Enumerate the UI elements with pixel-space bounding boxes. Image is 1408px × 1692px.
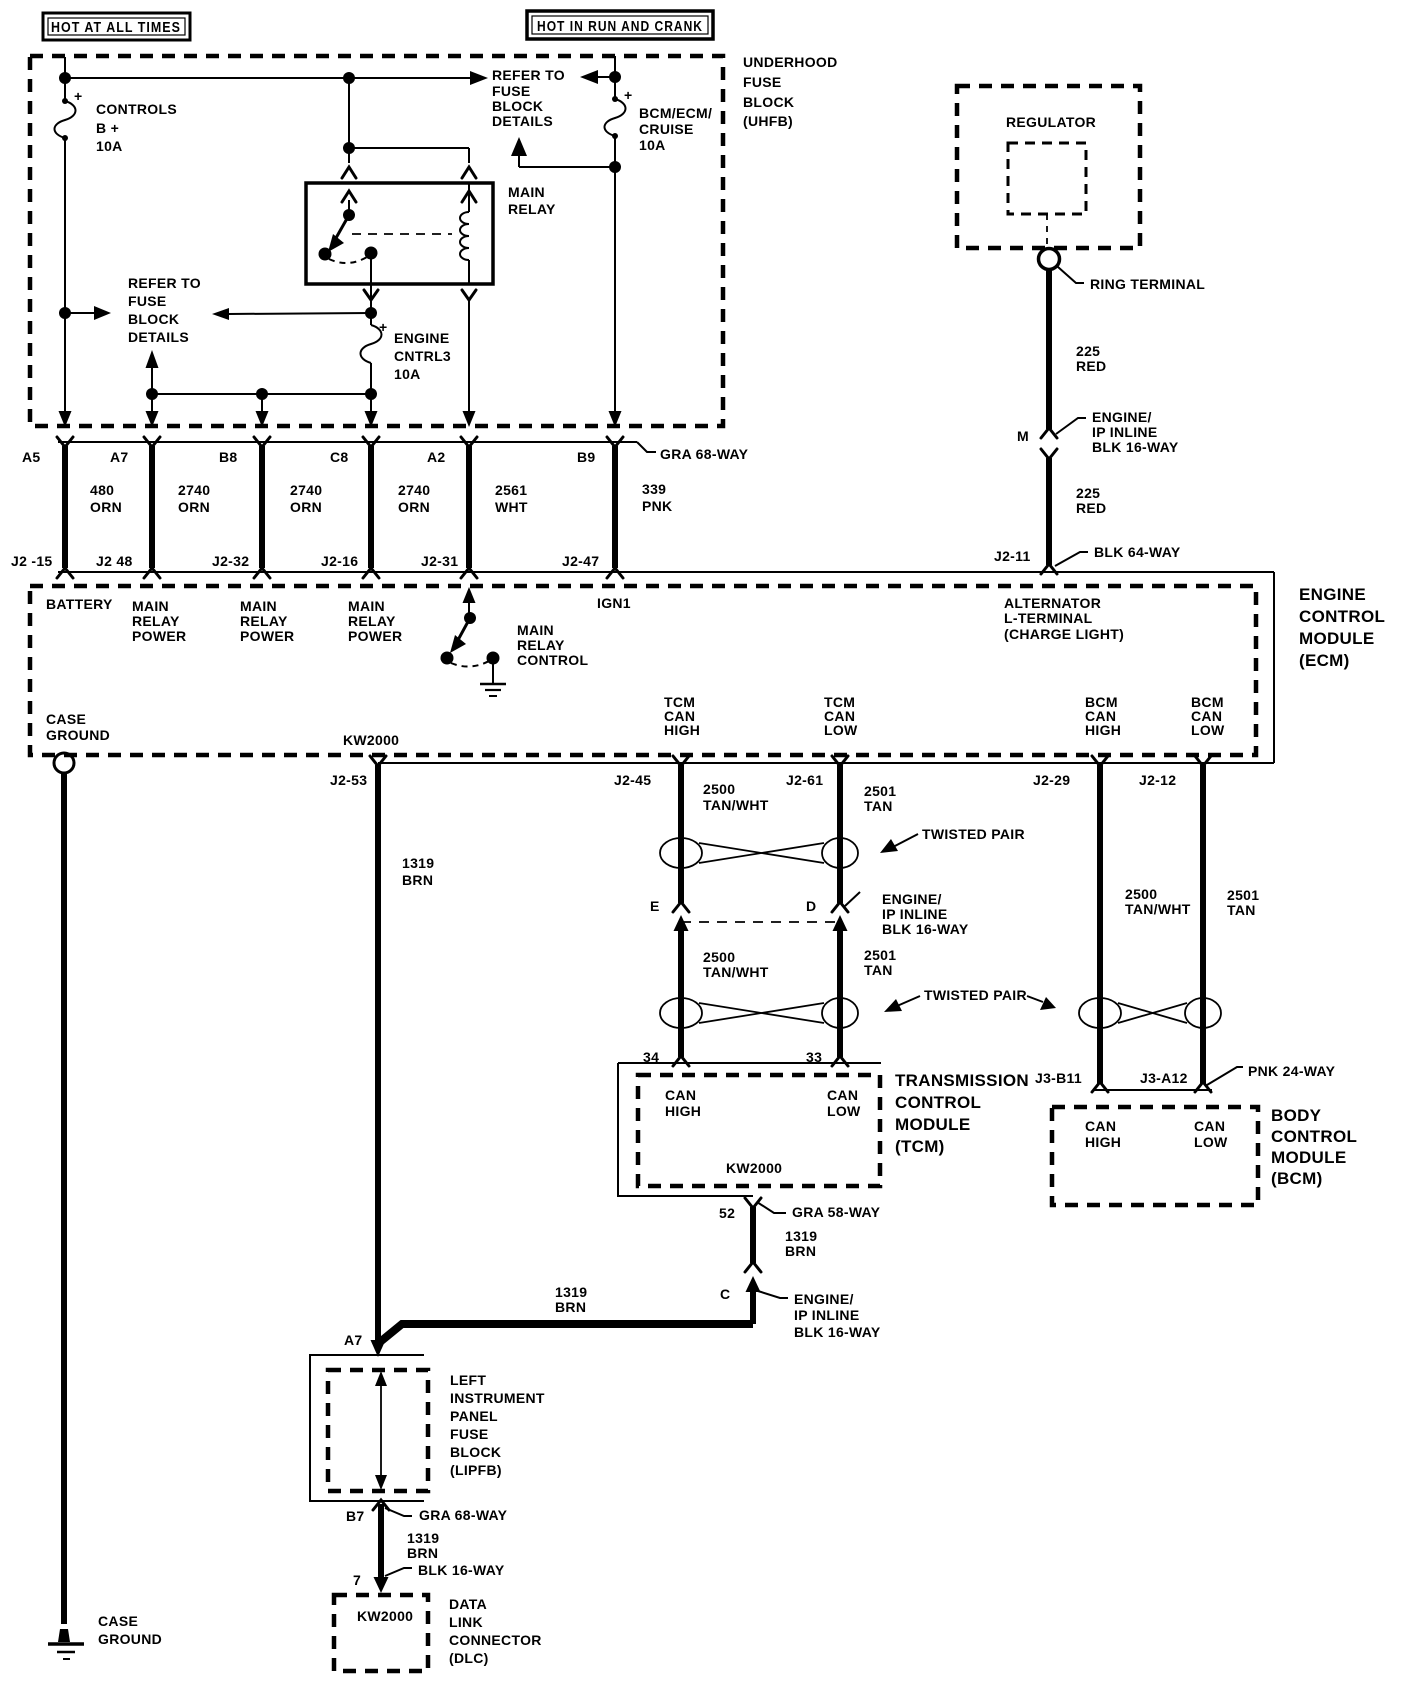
svg-text:TWISTED PAIR: TWISTED PAIR (924, 987, 1027, 1003)
svg-text:CONTROL: CONTROL (517, 652, 588, 668)
svg-text:MODULE: MODULE (1299, 629, 1374, 648)
svg-text:REGULATOR: REGULATOR (1006, 114, 1096, 130)
svg-text:IP INLINE: IP INLINE (794, 1307, 859, 1323)
svg-text:DETAILS: DETAILS (492, 113, 553, 129)
svg-text:L-TERMINAL: L-TERMINAL (1004, 610, 1093, 626)
svg-text:BLOCK: BLOCK (450, 1444, 501, 1460)
svg-text:CONNECTOR: CONNECTOR (449, 1632, 542, 1648)
svg-text:MODULE: MODULE (895, 1115, 970, 1134)
svg-text:RELAY: RELAY (348, 613, 396, 629)
svg-text:MAIN: MAIN (508, 184, 545, 200)
svg-text:7: 7 (353, 1572, 361, 1588)
svg-text:RELAY: RELAY (240, 613, 288, 629)
svg-text:1319: 1319 (785, 1228, 817, 1244)
svg-text:J2 -15: J2 -15 (11, 553, 53, 569)
svg-text:RED: RED (1076, 500, 1106, 516)
svg-text:TRANSMISSION: TRANSMISSION (895, 1071, 1029, 1090)
svg-text:CAN: CAN (1194, 1118, 1225, 1134)
svg-text:LINK: LINK (449, 1614, 483, 1630)
svg-text:GROUND: GROUND (46, 727, 110, 743)
svg-text:(UHFB): (UHFB) (743, 113, 793, 129)
svg-text:A5: A5 (22, 449, 41, 465)
svg-text:(TCM): (TCM) (895, 1137, 945, 1156)
svg-text:BLOCK: BLOCK (128, 311, 179, 327)
svg-text:CONTROLS: CONTROLS (96, 101, 177, 117)
svg-text:TAN/WHT: TAN/WHT (703, 797, 769, 813)
svg-text:POWER: POWER (132, 628, 186, 644)
svg-text:UNDERHOOD: UNDERHOOD (743, 54, 837, 70)
svg-text:BLOCK: BLOCK (743, 94, 794, 110)
svg-text:(BCM): (BCM) (1271, 1169, 1323, 1188)
svg-text:TAN: TAN (864, 798, 893, 814)
svg-text:CASE: CASE (98, 1613, 138, 1629)
svg-text:CRUISE: CRUISE (639, 121, 694, 137)
svg-text:TAN: TAN (864, 962, 893, 978)
svg-text:BATTERY: BATTERY (46, 596, 113, 612)
svg-text:GROUND: GROUND (98, 1631, 162, 1647)
svg-text:HIGH: HIGH (1085, 722, 1121, 738)
svg-text:J2-61: J2-61 (786, 772, 823, 788)
svg-text:CNTRL3: CNTRL3 (394, 348, 451, 364)
svg-text:BCM/ECM/: BCM/ECM/ (639, 105, 712, 121)
svg-text:2500: 2500 (703, 949, 735, 965)
svg-text:B7: B7 (346, 1508, 365, 1524)
svg-text:RELAY: RELAY (508, 201, 556, 217)
svg-text:(CHARGE LIGHT): (CHARGE LIGHT) (1004, 626, 1124, 642)
svg-text:PNK 24-WAY: PNK 24-WAY (1248, 1063, 1336, 1079)
svg-text:RELAY: RELAY (517, 637, 565, 653)
svg-text:RING TERMINAL: RING TERMINAL (1090, 276, 1205, 292)
svg-text:1319: 1319 (402, 855, 434, 871)
svg-text:LOW: LOW (824, 722, 858, 738)
svg-text:J2-29: J2-29 (1033, 772, 1070, 788)
svg-text:FUSE: FUSE (743, 74, 782, 90)
svg-text:BRN: BRN (785, 1243, 816, 1259)
svg-text:HIGH: HIGH (665, 1103, 701, 1119)
svg-text:2501: 2501 (864, 783, 896, 799)
svg-text:B8: B8 (219, 449, 238, 465)
svg-text:ALTERNATOR: ALTERNATOR (1004, 595, 1101, 611)
svg-text:TAN: TAN (1227, 902, 1256, 918)
svg-text:KW2000: KW2000 (343, 732, 399, 748)
svg-text:ENGINE/: ENGINE/ (882, 891, 942, 907)
svg-text:BLK 16-WAY: BLK 16-WAY (418, 1562, 505, 1578)
svg-text:BLK 16-WAY: BLK 16-WAY (1092, 439, 1179, 455)
svg-text:+: + (74, 88, 82, 104)
svg-text:IGN1: IGN1 (597, 595, 631, 611)
svg-text:B9: B9 (577, 449, 596, 465)
svg-text:1319: 1319 (407, 1530, 439, 1546)
svg-text:CONTROL: CONTROL (1299, 607, 1385, 626)
svg-text:RELAY: RELAY (132, 613, 180, 629)
svg-text:+: + (624, 87, 632, 103)
svg-text:ENGINE/: ENGINE/ (1092, 409, 1152, 425)
svg-text:BRN: BRN (555, 1299, 586, 1315)
svg-text:TWISTED PAIR: TWISTED PAIR (922, 826, 1025, 842)
svg-text:225: 225 (1076, 485, 1100, 501)
svg-text:(DLC): (DLC) (449, 1650, 489, 1666)
svg-text:GRA 68-WAY: GRA 68-WAY (419, 1507, 508, 1523)
svg-text:GRA 68-WAY: GRA 68-WAY (660, 446, 749, 462)
svg-text:A7: A7 (344, 1332, 363, 1348)
svg-text:339: 339 (642, 481, 666, 497)
svg-text:480: 480 (90, 482, 114, 498)
svg-text:J2-47: J2-47 (562, 553, 599, 569)
svg-text:POWER: POWER (240, 628, 294, 644)
svg-text:J2-31: J2-31 (421, 553, 458, 569)
svg-text:LEFT: LEFT (450, 1372, 486, 1388)
svg-text:TAN/WHT: TAN/WHT (703, 964, 769, 980)
svg-text:LOW: LOW (1191, 722, 1225, 738)
svg-text:ENGINE/: ENGINE/ (794, 1291, 854, 1307)
svg-text:J2-45: J2-45 (614, 772, 651, 788)
svg-text:J2-11: J2-11 (994, 548, 1031, 564)
svg-text:C8: C8 (330, 449, 349, 465)
svg-text:LOW: LOW (827, 1103, 861, 1119)
svg-text:PANEL: PANEL (450, 1408, 498, 1424)
svg-text:PNK: PNK (642, 498, 672, 514)
svg-text:BLK 16-WAY: BLK 16-WAY (794, 1324, 881, 1340)
svg-text:J2-16: J2-16 (321, 553, 358, 569)
svg-text:CONTROL: CONTROL (895, 1093, 981, 1112)
svg-text:A2: A2 (427, 449, 446, 465)
svg-text:DATA: DATA (449, 1596, 487, 1612)
svg-text:J2-12: J2-12 (1139, 772, 1176, 788)
svg-text:J2-32: J2-32 (212, 553, 249, 569)
svg-text:BLK 16-WAY: BLK 16-WAY (882, 921, 969, 937)
svg-text:REFER TO: REFER TO (492, 67, 565, 83)
svg-text:D: D (806, 898, 816, 914)
svg-text:IP INLINE: IP INLINE (1092, 424, 1157, 440)
svg-text:ORN: ORN (290, 499, 322, 515)
svg-text:CASE: CASE (46, 711, 86, 727)
svg-text:2500: 2500 (1125, 886, 1157, 902)
svg-text:ORN: ORN (178, 499, 210, 515)
svg-text:CONTROL: CONTROL (1271, 1127, 1357, 1146)
svg-text:2740: 2740 (178, 482, 210, 498)
svg-text:POWER: POWER (348, 628, 402, 644)
svg-text:GRA 58-WAY: GRA 58-WAY (792, 1204, 881, 1220)
svg-text:10A: 10A (96, 138, 123, 154)
svg-text:2740: 2740 (290, 482, 322, 498)
svg-text:CAN: CAN (1085, 1118, 1116, 1134)
svg-text:ORN: ORN (90, 499, 122, 515)
svg-text:J2-53: J2-53 (330, 772, 367, 788)
svg-text:ENGINE: ENGINE (1299, 585, 1366, 604)
svg-text:(ECM): (ECM) (1299, 651, 1350, 670)
svg-text:FUSE: FUSE (492, 83, 531, 99)
svg-text:2501: 2501 (1227, 887, 1259, 903)
svg-text:FUSE: FUSE (450, 1426, 489, 1442)
svg-text:MAIN: MAIN (240, 598, 277, 614)
svg-text:LOW: LOW (1194, 1134, 1228, 1150)
svg-text:ORN: ORN (398, 499, 430, 515)
svg-text:HOT AT ALL TIMES: HOT AT ALL TIMES (51, 20, 181, 36)
svg-text:2500: 2500 (703, 781, 735, 797)
svg-text:10A: 10A (394, 366, 421, 382)
svg-text:J3-A12: J3-A12 (1140, 1070, 1188, 1086)
svg-text:BRN: BRN (407, 1545, 438, 1561)
svg-text:HIGH: HIGH (1085, 1134, 1121, 1150)
svg-text:C: C (720, 1286, 730, 1302)
svg-text:KW2000: KW2000 (726, 1160, 782, 1176)
svg-text:MODULE: MODULE (1271, 1148, 1346, 1167)
svg-text:CAN: CAN (665, 1087, 696, 1103)
svg-text:BRN: BRN (402, 872, 433, 888)
svg-text:TAN/WHT: TAN/WHT (1125, 901, 1191, 917)
svg-text:2561: 2561 (495, 482, 527, 498)
svg-text:WHT: WHT (495, 499, 528, 515)
svg-text:BODY: BODY (1271, 1106, 1322, 1125)
svg-text:BLK 64-WAY: BLK 64-WAY (1094, 544, 1181, 560)
svg-text:J2 48: J2 48 (96, 553, 133, 569)
svg-text:52: 52 (719, 1205, 735, 1221)
svg-text:ENGINE: ENGINE (394, 330, 449, 346)
svg-text:HOT IN RUN AND CRANK: HOT IN RUN AND CRANK (537, 19, 703, 35)
svg-text:MAIN: MAIN (348, 598, 385, 614)
svg-text:2740: 2740 (398, 482, 430, 498)
svg-text:REFER TO: REFER TO (128, 275, 201, 291)
svg-text:A7: A7 (110, 449, 129, 465)
svg-text:FUSE: FUSE (128, 293, 167, 309)
svg-text:BLOCK: BLOCK (492, 98, 543, 114)
svg-text:DETAILS: DETAILS (128, 329, 189, 345)
svg-text:E: E (650, 898, 660, 914)
svg-text:HIGH: HIGH (664, 722, 700, 738)
svg-text:B +: B + (96, 120, 119, 136)
svg-text:KW2000: KW2000 (357, 1608, 413, 1624)
svg-text:RED: RED (1076, 358, 1106, 374)
svg-text:CAN: CAN (827, 1087, 858, 1103)
svg-text:10A: 10A (639, 137, 666, 153)
svg-text:(LIPFB): (LIPFB) (450, 1462, 502, 1478)
svg-text:M: M (1017, 428, 1029, 444)
svg-text:IP INLINE: IP INLINE (882, 906, 947, 922)
svg-text:225: 225 (1076, 343, 1100, 359)
svg-text:1319: 1319 (555, 1284, 587, 1300)
svg-text:2501: 2501 (864, 947, 896, 963)
svg-text:INSTRUMENT: INSTRUMENT (450, 1390, 545, 1406)
svg-text:MAIN: MAIN (132, 598, 169, 614)
svg-text:J3-B11: J3-B11 (1035, 1070, 1082, 1086)
svg-text:MAIN: MAIN (517, 622, 554, 638)
